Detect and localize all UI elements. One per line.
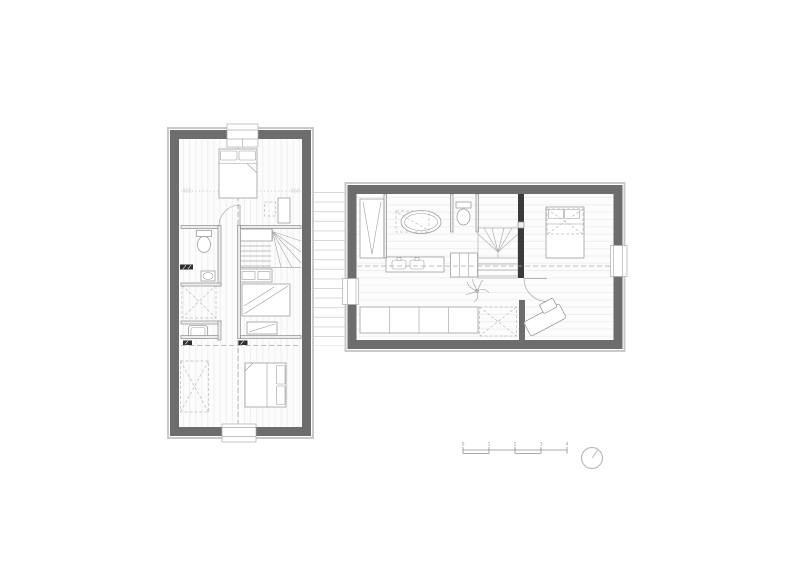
window-left-b [343,279,359,305]
single-bed-mid [242,284,290,316]
wardrobe [360,199,384,258]
scale-label-1: 1 [488,442,491,448]
north-arrow-icon [582,448,603,469]
partition-center-b [518,194,525,340]
radiator-left [183,341,192,346]
vanity-double-sink [386,257,444,272]
scale-bar: 0 1 2 3 4 [462,442,569,454]
scale-label-4: 4 [566,442,569,448]
closet-under-stairs [239,269,272,282]
scale-label-2: 2 [514,442,517,448]
scale-label-0: 0 [462,442,465,448]
double-bed-b [546,207,584,258]
dresser [451,253,478,277]
building-b [343,183,628,351]
window-bottom-a [222,424,256,442]
building-a [168,124,313,442]
radiator-bathroom [180,265,193,270]
floor-plan-drawing: 0 1 2 3 4 [0,0,800,561]
double-bed-top [219,149,257,198]
window-right-b [611,246,628,277]
floor-plan-sheet: 0 1 2 3 4 [0,0,800,561]
sideboard [360,307,478,333]
deck-walkway [312,190,347,346]
window-top-a [227,124,258,147]
side-table-mid [247,322,277,334]
radiator-right [239,341,248,346]
double-bed-bottom [245,363,286,407]
scale-label-3: 3 [540,442,543,448]
